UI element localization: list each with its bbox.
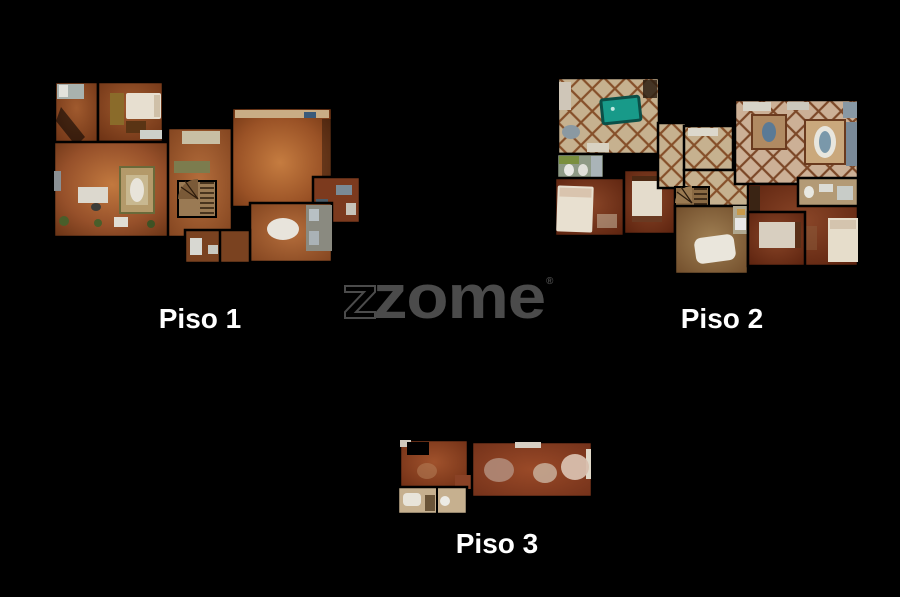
dining-table	[267, 218, 299, 240]
toilet	[564, 164, 574, 176]
table	[693, 233, 736, 264]
room-games	[558, 78, 659, 154]
bathtub	[403, 493, 421, 506]
zome-watermark: zome ®	[342, 268, 558, 322]
stairs	[178, 179, 216, 217]
floorplan-piso-1-image	[54, 73, 370, 279]
desk	[78, 187, 108, 203]
room-bath-green	[557, 154, 604, 180]
zome-wordmark: zome	[373, 268, 545, 322]
room-dining	[675, 206, 748, 274]
plant	[59, 216, 69, 226]
room-suite	[735, 100, 858, 184]
bed	[759, 222, 797, 248]
room-attic-bath	[398, 487, 467, 514]
room-bedroom-small	[748, 212, 805, 266]
floorplan-piso-2-image	[547, 66, 873, 284]
floorplan-piso-3-image	[397, 437, 609, 517]
room-bedroom-left	[555, 178, 624, 236]
floorplan-composite: zome ® Piso 1 Piso 2 Piso 3	[0, 0, 900, 597]
room-living	[54, 142, 170, 237]
zome-z-icon	[345, 286, 375, 318]
room-bedroom-a	[55, 82, 98, 147]
table	[130, 178, 144, 202]
room-baths	[185, 230, 250, 263]
room-attic-right	[472, 442, 592, 497]
floor-label-piso-2: Piso 2	[681, 303, 763, 335]
registered-mark: ®	[546, 276, 554, 287]
pool-table	[601, 96, 641, 124]
floor-label-piso-1: Piso 1	[159, 303, 241, 335]
room-hall-stairs	[168, 128, 232, 237]
toilet	[440, 496, 450, 506]
room-kitchen	[250, 203, 332, 262]
room-bedroom-b	[98, 82, 163, 142]
floor-label-piso-3: Piso 3	[456, 528, 538, 560]
